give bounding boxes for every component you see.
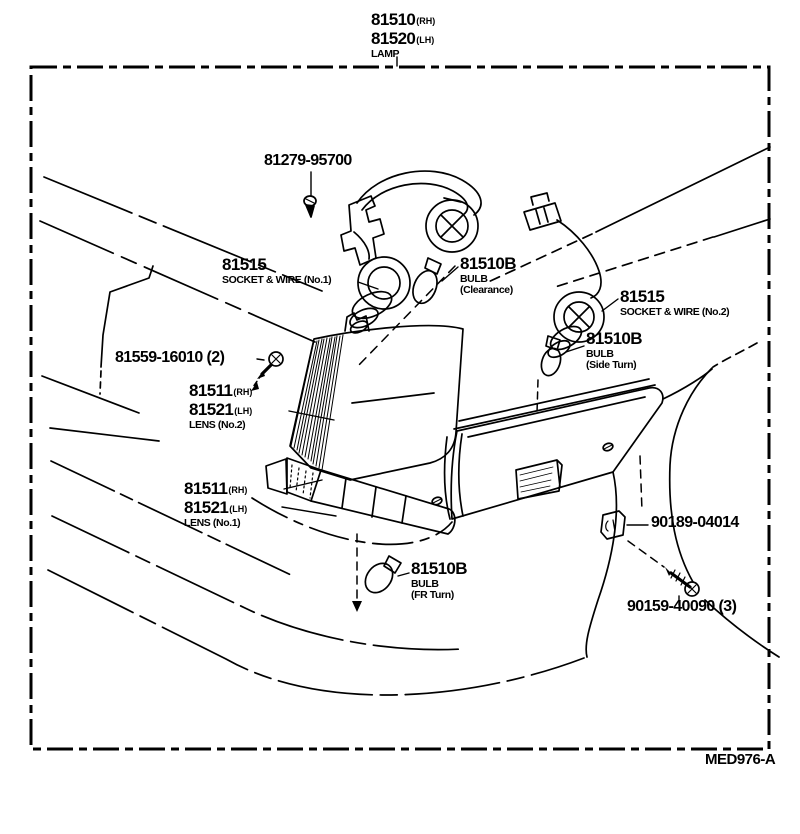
part-number: 81511 bbox=[184, 480, 227, 497]
exploded-diagram bbox=[0, 0, 800, 834]
clip-drawing bbox=[601, 511, 625, 539]
part-description: SOCKET & WIRE (No.1) bbox=[222, 275, 331, 286]
fr-turn-bulb-drawing bbox=[360, 556, 401, 598]
part-suffix: (RH) bbox=[228, 485, 247, 495]
part-number: 90189-04014 bbox=[651, 515, 739, 531]
label-bulb-side-turn: 81510B BULB (Side Turn) bbox=[586, 330, 642, 371]
label-retainer-screw: 81279-95700 bbox=[264, 152, 352, 170]
part-number: 81559-16010 (2) bbox=[115, 350, 224, 366]
part-suffix: (RH) bbox=[233, 387, 252, 397]
label-clip: 90189-04014 bbox=[651, 514, 739, 532]
part-number: 81511 bbox=[189, 382, 232, 399]
label-lens-no1: 81511(RH) 81521(LH) LENS (No.1) bbox=[184, 480, 247, 529]
clearance-bulb-drawing bbox=[408, 258, 441, 307]
part-description: LENS (No.2) bbox=[189, 420, 252, 431]
label-bulb-clearance: 81510B BULB (Clearance) bbox=[460, 255, 516, 296]
part-number: 81521 bbox=[184, 499, 228, 516]
part-number: 81521 bbox=[189, 401, 233, 418]
label-bulb-fr-turn: 81510B BULB (FR Turn) bbox=[411, 560, 467, 601]
parts-diagram-page: 81510(RH) 81520(LH) LAMP 81279-95700 815… bbox=[0, 0, 800, 834]
part-description: (FR Turn) bbox=[411, 590, 467, 601]
part-number: 81510B bbox=[411, 560, 467, 577]
part-description: LAMP bbox=[371, 49, 435, 60]
part-suffix: (LH) bbox=[416, 35, 434, 45]
part-description: (Clearance) bbox=[460, 285, 516, 296]
figure-code: MED976-A bbox=[705, 751, 775, 768]
part-description: (Side Turn) bbox=[586, 360, 642, 371]
part-number: 81510 bbox=[371, 11, 415, 28]
part-number: 81515 bbox=[222, 256, 266, 273]
lens-no1-drawing bbox=[266, 458, 455, 534]
part-number: 81520 bbox=[371, 30, 415, 47]
part-number: 90159-40090 (3) bbox=[627, 599, 736, 615]
label-socket-wire-2: 81515 SOCKET & WIRE (No.2) bbox=[620, 288, 729, 318]
part-suffix: (LH) bbox=[229, 504, 247, 514]
lens-no2-drawing bbox=[290, 313, 463, 480]
label-garnish-screw: 90159-40090 (3) bbox=[627, 598, 736, 616]
label-socket-wire-1: 81515 SOCKET & WIRE (No.1) bbox=[222, 256, 331, 286]
label-lamp-assembly: 81510(RH) 81520(LH) LAMP bbox=[371, 11, 435, 60]
garnish-panel-drawing bbox=[431, 379, 663, 519]
label-lens-no2: 81511(RH) 81521(LH) LENS (No.2) bbox=[189, 382, 252, 431]
part-number: 81510B bbox=[586, 330, 642, 347]
part-number: 81510B bbox=[460, 255, 516, 272]
part-number: 81279-95700 bbox=[264, 153, 352, 169]
part-suffix: (LH) bbox=[234, 406, 252, 416]
retainer-screw-drawing bbox=[304, 196, 316, 217]
label-lens-screw: 81559-16010 (2) bbox=[115, 349, 224, 367]
part-number: 81515 bbox=[620, 288, 664, 305]
part-description: LENS (No.1) bbox=[184, 518, 247, 529]
part-suffix: (RH) bbox=[416, 16, 435, 26]
part-description: SOCKET & WIRE (No.2) bbox=[620, 307, 729, 318]
garnish-screw-drawing bbox=[665, 567, 699, 596]
